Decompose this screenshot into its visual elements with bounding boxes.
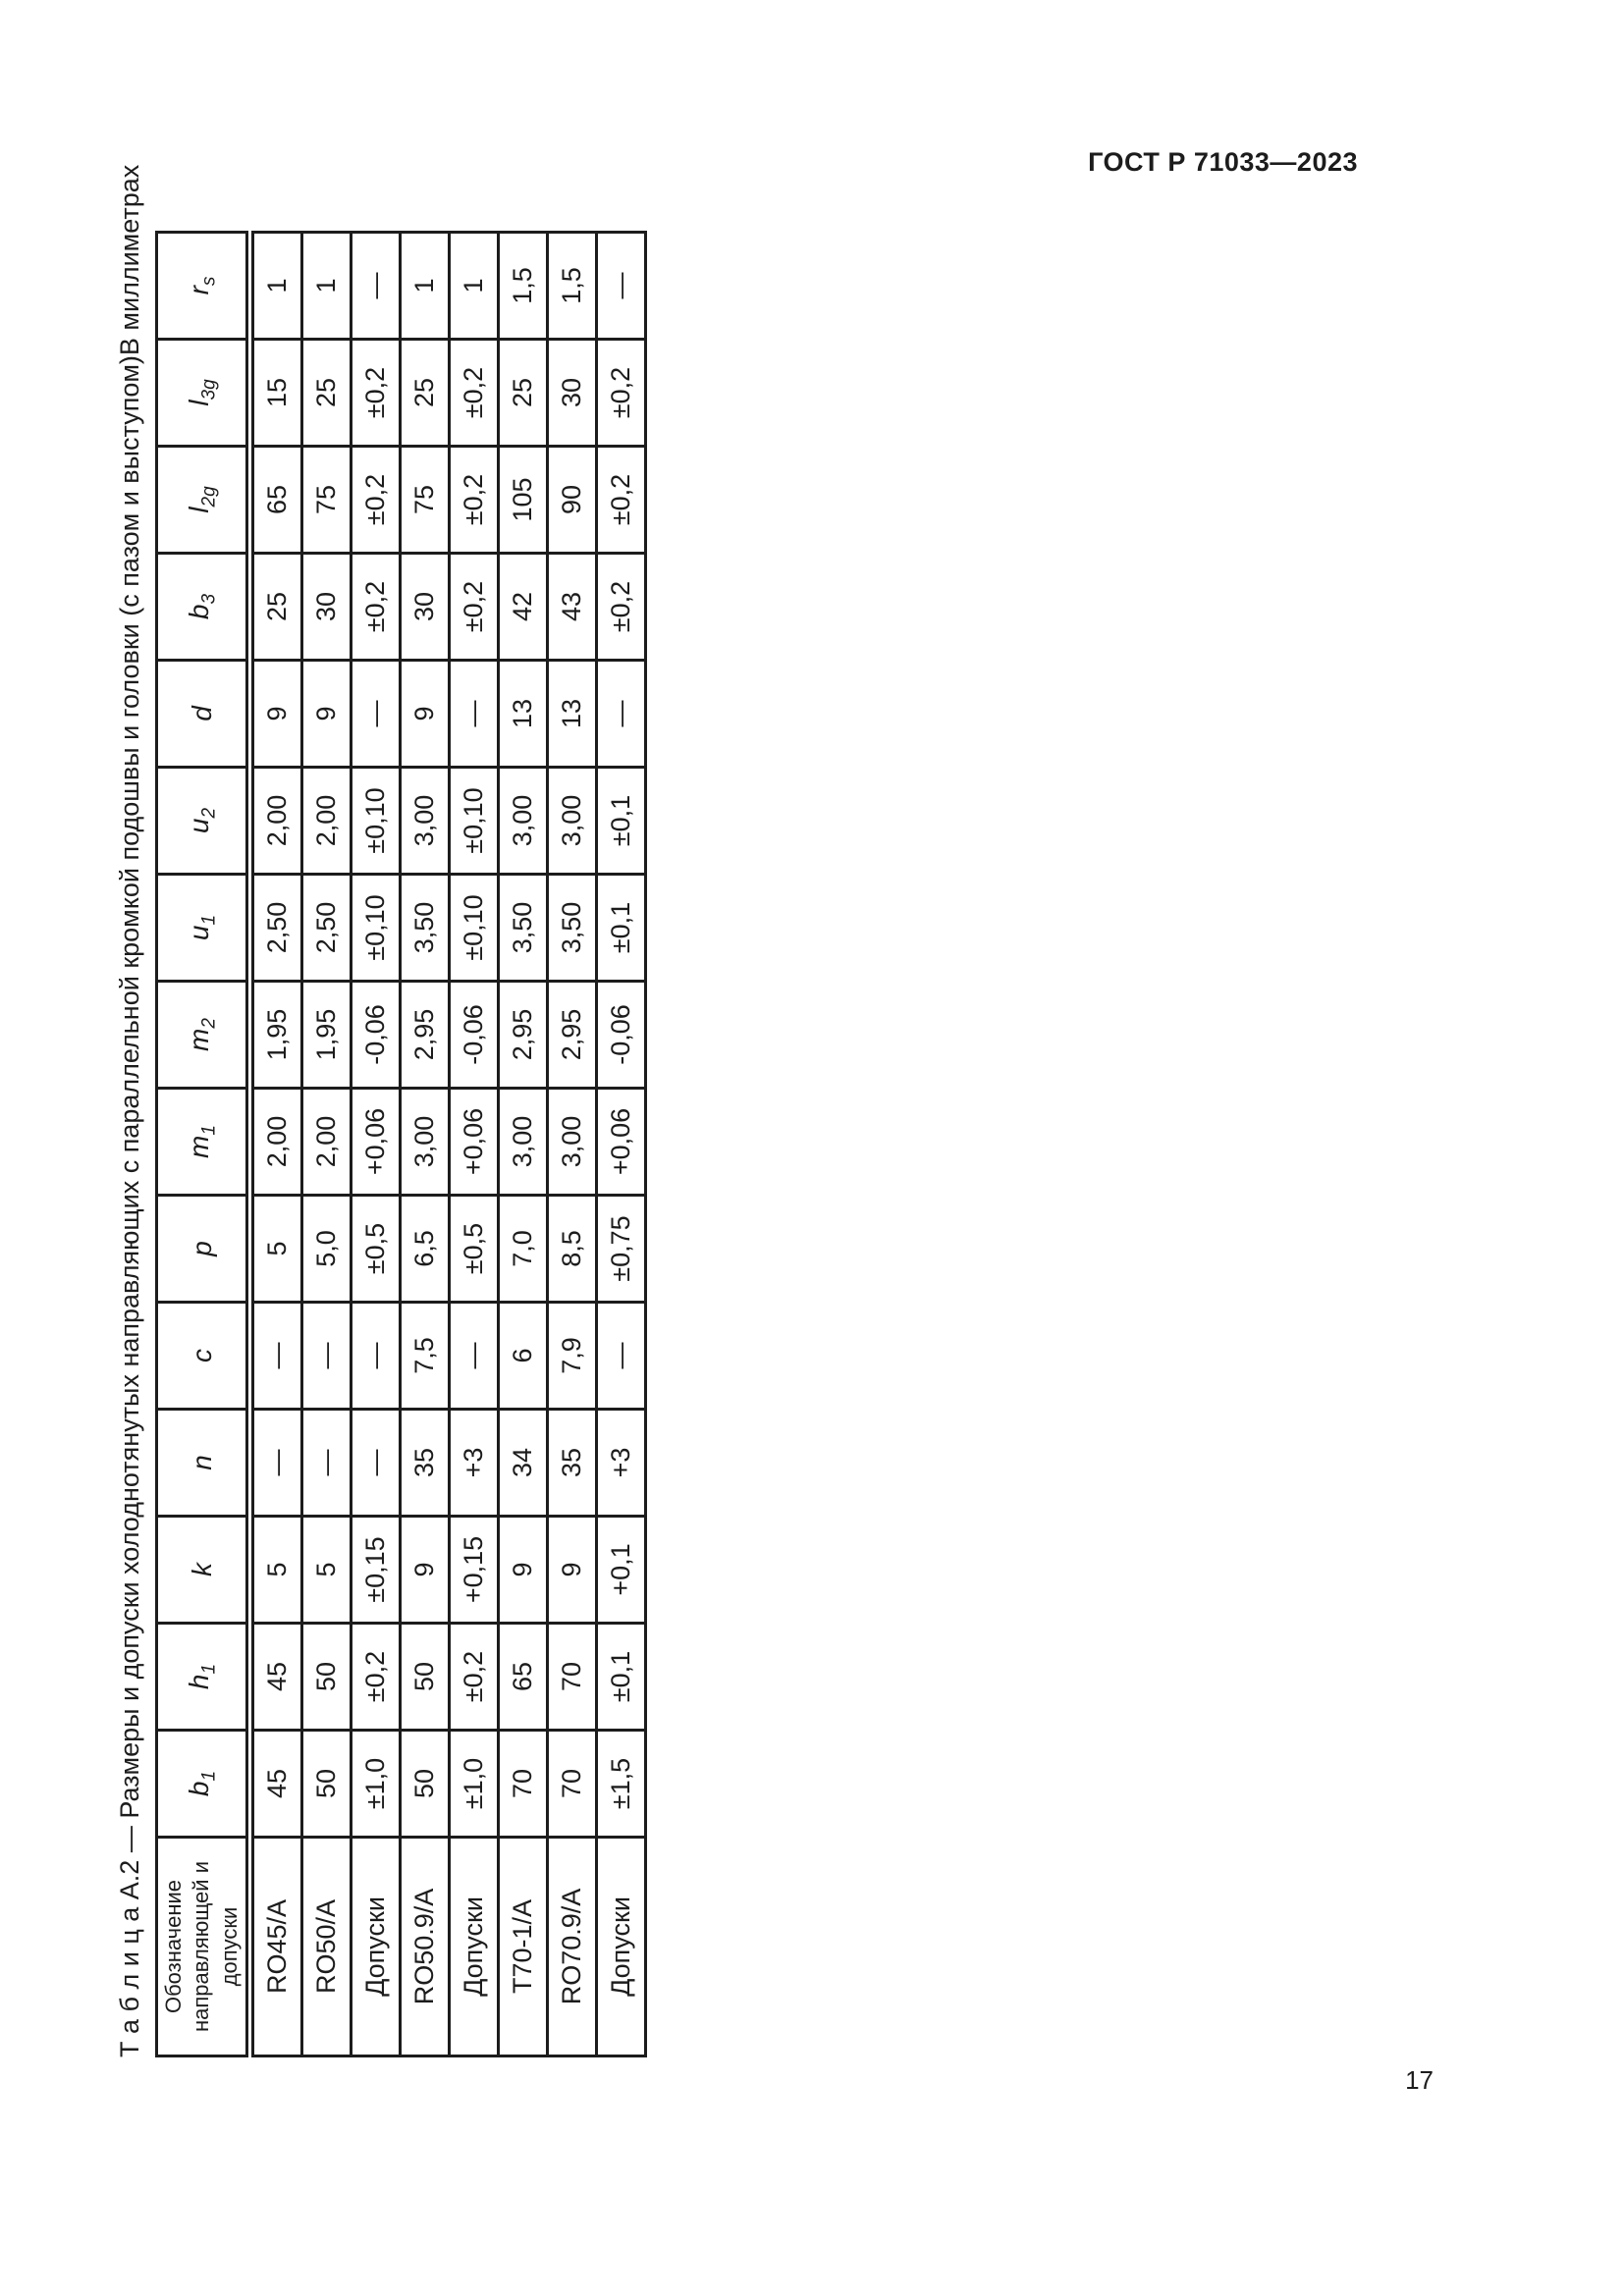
- value-cell: 3,50: [401, 875, 450, 982]
- value-cell: 30: [401, 554, 450, 661]
- dimensions-table: Обозначение направляющей и допуски b1h1k…: [155, 231, 647, 2057]
- row-label-cell: Т70-1/А: [499, 1838, 548, 2056]
- value-cell: +0,06: [352, 1089, 401, 1196]
- value-cell: 3,00: [499, 1089, 548, 1196]
- value-cell: 3,00: [548, 1089, 597, 1196]
- value-cell: 1: [401, 233, 450, 340]
- value-cell: 2,50: [302, 875, 352, 982]
- table-row: Т70-1/А706593467,03,002,953,503,00134210…: [499, 233, 548, 2056]
- value-cell: —: [250, 1410, 302, 1517]
- value-cell: 30: [548, 340, 597, 447]
- value-cell: —: [302, 1303, 352, 1410]
- value-cell: 9: [401, 661, 450, 768]
- value-cell: 2,50: [250, 875, 302, 982]
- value-cell: ±0,75: [597, 1196, 646, 1303]
- dimension-subscript: 1: [198, 1771, 219, 1782]
- value-cell: —: [597, 233, 646, 340]
- value-cell: 1,95: [302, 982, 352, 1089]
- value-cell: 2,00: [250, 768, 302, 875]
- value-cell: ±0,5: [352, 1196, 401, 1303]
- dimension-symbol: l: [184, 507, 214, 512]
- column-header-cell: u1: [157, 875, 250, 982]
- value-cell: ±1,0: [450, 1731, 499, 1838]
- dimension-symbol: d: [187, 706, 217, 721]
- value-cell: ±0,1: [597, 875, 646, 982]
- value-cell: 6,5: [401, 1196, 450, 1303]
- dimension-subscript: 1: [198, 1664, 219, 1675]
- dimension-subscript: 2: [198, 1018, 219, 1029]
- value-cell: 70: [548, 1731, 597, 1838]
- header-row: Обозначение направляющей и допуски b1h1k…: [157, 233, 250, 2056]
- value-cell: ±0,2: [352, 1624, 401, 1731]
- value-cell: 3,00: [499, 768, 548, 875]
- value-cell: 5: [250, 1517, 302, 1624]
- value-cell: ±0,10: [352, 768, 401, 875]
- value-cell: 42: [499, 554, 548, 661]
- value-cell: 1,5: [548, 233, 597, 340]
- row-label-cell: RO70.9/A: [548, 1838, 597, 2056]
- value-cell: 3,50: [499, 875, 548, 982]
- value-cell: 9: [548, 1517, 597, 1624]
- value-cell: —: [352, 661, 401, 768]
- value-cell: +0,06: [597, 1089, 646, 1196]
- column-header-cell: u2: [157, 768, 250, 875]
- value-cell: ±0,15: [352, 1517, 401, 1624]
- dimension-symbol: u: [184, 819, 214, 834]
- value-cell: 105: [499, 447, 548, 554]
- value-cell: 45: [250, 1624, 302, 1731]
- table-row: Допуски±1,0±0,2+0,15+3—±0,5+0,06-0,06±0,…: [450, 233, 499, 2056]
- value-cell: 1: [250, 233, 302, 340]
- value-cell: 3,00: [548, 768, 597, 875]
- dimension-subscript: 3g: [198, 379, 219, 400]
- row-label-cell: Допуски: [597, 1838, 646, 2056]
- dimension-subscript: 2: [198, 808, 219, 819]
- value-cell: —: [352, 233, 401, 340]
- column-header-cell: l2g: [157, 447, 250, 554]
- value-cell: 70: [499, 1731, 548, 1838]
- value-cell: -0,06: [597, 982, 646, 1089]
- value-cell: 8,5: [548, 1196, 597, 1303]
- value-cell: 1: [302, 233, 352, 340]
- table-row: RO70.9/A70709357,98,53,002,953,503,00134…: [548, 233, 597, 2056]
- table-row: RO45/A45455——52,001,952,502,0092565151: [250, 233, 302, 2056]
- document-code-header: ГОСТ Р 71033—2023: [1088, 147, 1358, 178]
- value-cell: 43: [548, 554, 597, 661]
- value-cell: 7,0: [499, 1196, 548, 1303]
- value-cell: —: [352, 1303, 401, 1410]
- value-cell: 75: [401, 447, 450, 554]
- value-cell: 15: [250, 340, 302, 447]
- dimension-symbol: n: [187, 1455, 217, 1470]
- value-cell: -0,06: [450, 982, 499, 1089]
- value-cell: 7,9: [548, 1303, 597, 1410]
- value-cell: 45: [250, 1731, 302, 1838]
- value-cell: 9: [250, 661, 302, 768]
- value-cell: 30: [302, 554, 352, 661]
- value-cell: -0,06: [352, 982, 401, 1089]
- column-header-cell: l3g: [157, 340, 250, 447]
- value-cell: 50: [401, 1731, 450, 1838]
- value-cell: 50: [302, 1731, 352, 1838]
- column-header-cell: k: [157, 1517, 250, 1624]
- dimension-symbol: r: [184, 286, 214, 294]
- column-header-cell: m1: [157, 1089, 250, 1196]
- value-cell: 34: [499, 1410, 548, 1517]
- column-header-cell: p: [157, 1196, 250, 1303]
- column-header-cell: b1: [157, 1731, 250, 1838]
- column-header-cell: h1: [157, 1624, 250, 1731]
- value-cell: 2,95: [401, 982, 450, 1089]
- dimension-symbol: m: [184, 1029, 214, 1051]
- column-header-cell: n: [157, 1410, 250, 1517]
- value-cell: 13: [499, 661, 548, 768]
- value-cell: 9: [499, 1517, 548, 1624]
- value-cell: 2,00: [250, 1089, 302, 1196]
- value-cell: 2,00: [302, 1089, 352, 1196]
- dimension-symbol: l: [184, 400, 214, 405]
- value-cell: 35: [548, 1410, 597, 1517]
- value-cell: 65: [250, 447, 302, 554]
- value-cell: ±0,2: [597, 447, 646, 554]
- rotated-table-block: Т а б л и ц а А.2 — Размеры и допуски хо…: [110, 222, 646, 2057]
- value-cell: ±0,10: [352, 875, 401, 982]
- value-cell: —: [250, 1303, 302, 1410]
- dimension-subscript: 3: [198, 594, 219, 605]
- page-number: 17: [1405, 2065, 1434, 2096]
- value-cell: ±0,1: [597, 1624, 646, 1731]
- dimension-symbol: b: [184, 1782, 214, 1797]
- value-cell: —: [597, 661, 646, 768]
- value-cell: 9: [401, 1517, 450, 1624]
- value-cell: +0,15: [450, 1517, 499, 1624]
- dimension-symbol: u: [184, 926, 214, 941]
- value-cell: 75: [302, 447, 352, 554]
- row-label-cell: RO50.9/A: [401, 1838, 450, 2056]
- value-cell: 3,00: [401, 768, 450, 875]
- value-cell: —: [597, 1303, 646, 1410]
- value-cell: 2,00: [302, 768, 352, 875]
- value-cell: 50: [401, 1624, 450, 1731]
- value-cell: 3,50: [548, 875, 597, 982]
- value-cell: 7,5: [401, 1303, 450, 1410]
- dimension-subscript: 1: [198, 915, 219, 926]
- value-cell: +3: [450, 1410, 499, 1517]
- value-cell: 70: [548, 1624, 597, 1731]
- value-cell: ±0,10: [450, 768, 499, 875]
- column-header-cell: c: [157, 1303, 250, 1410]
- dimension-symbol: c: [187, 1349, 217, 1362]
- value-cell: ±0,1: [597, 768, 646, 875]
- value-cell: 5: [302, 1517, 352, 1624]
- dimension-symbol: b: [184, 605, 214, 620]
- value-cell: 25: [401, 340, 450, 447]
- value-cell: ±1,0: [352, 1731, 401, 1838]
- value-cell: —: [302, 1410, 352, 1517]
- value-cell: 3,00: [401, 1089, 450, 1196]
- column-header-cell: rs: [157, 233, 250, 340]
- dimension-symbol: k: [187, 1563, 217, 1576]
- dimension-subscript: 2g: [198, 486, 219, 507]
- value-cell: ±0,5: [450, 1196, 499, 1303]
- value-cell: 1: [450, 233, 499, 340]
- table-title: Т а б л и ц а А.2 — Размеры и допуски хо…: [115, 355, 145, 2057]
- value-cell: ±0,2: [450, 1624, 499, 1731]
- dimension-subscript: s: [198, 277, 219, 287]
- value-cell: ±0,2: [450, 340, 499, 447]
- value-cell: 25: [499, 340, 548, 447]
- dimension-symbol: h: [184, 1675, 214, 1690]
- value-cell: ±1,5: [597, 1731, 646, 1838]
- value-cell: 2,95: [499, 982, 548, 1089]
- value-cell: 1,95: [250, 982, 302, 1089]
- column-header-cell: d: [157, 661, 250, 768]
- value-cell: —: [450, 661, 499, 768]
- column-header-cell: b3: [157, 554, 250, 661]
- value-cell: 2,95: [548, 982, 597, 1089]
- corner-header-cell: Обозначение направляющей и допуски: [157, 1838, 250, 2056]
- value-cell: 25: [302, 340, 352, 447]
- table-caption-row: Т а б л и ц а А.2 — Размеры и допуски хо…: [110, 222, 145, 2057]
- value-cell: 9: [302, 661, 352, 768]
- row-label-cell: RO45/A: [250, 1838, 302, 2056]
- value-cell: 25: [250, 554, 302, 661]
- value-cell: 65: [499, 1624, 548, 1731]
- value-cell: ±0,2: [597, 340, 646, 447]
- value-cell: 90: [548, 447, 597, 554]
- row-label-cell: RO50/A: [302, 1838, 352, 2056]
- value-cell: 35: [401, 1410, 450, 1517]
- value-cell: ±0,2: [352, 447, 401, 554]
- value-cell: +3: [597, 1410, 646, 1517]
- units-note: В миллиметрах: [115, 165, 145, 355]
- table-row: RO50/A50505——5,02,001,952,502,0093075251: [302, 233, 352, 2056]
- value-cell: —: [450, 1303, 499, 1410]
- value-cell: ±0,2: [450, 447, 499, 554]
- value-cell: 5: [250, 1196, 302, 1303]
- value-cell: ±0,10: [450, 875, 499, 982]
- value-cell: 6: [499, 1303, 548, 1410]
- value-cell: 13: [548, 661, 597, 768]
- value-cell: ±0,2: [450, 554, 499, 661]
- value-cell: +0,1: [597, 1517, 646, 1624]
- value-cell: 50: [302, 1624, 352, 1731]
- value-cell: ±0,2: [352, 554, 401, 661]
- value-cell: ±0,2: [352, 340, 401, 447]
- value-cell: +0,06: [450, 1089, 499, 1196]
- value-cell: ±0,2: [597, 554, 646, 661]
- table-row: Допуски±1,0±0,2±0,15——±0,5+0,06-0,06±0,1…: [352, 233, 401, 2056]
- row-label-cell: Допуски: [352, 1838, 401, 2056]
- dimension-symbol: p: [187, 1241, 217, 1256]
- value-cell: 1,5: [499, 233, 548, 340]
- dimension-symbol: m: [184, 1136, 214, 1158]
- column-header-cell: m2: [157, 982, 250, 1089]
- value-cell: 5,0: [302, 1196, 352, 1303]
- dimension-subscript: 1: [198, 1125, 219, 1136]
- table-row: Допуски±1,5±0,1+0,1+3—±0,75+0,06-0,06±0,…: [597, 233, 646, 2056]
- value-cell: —: [352, 1410, 401, 1517]
- table-row: RO50.9/A50509357,56,53,002,953,503,00930…: [401, 233, 450, 2056]
- row-label-cell: Допуски: [450, 1838, 499, 2056]
